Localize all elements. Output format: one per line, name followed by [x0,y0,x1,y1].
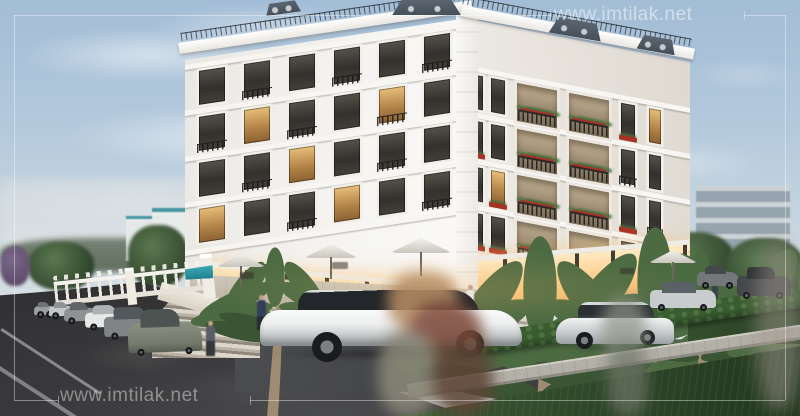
watermark-top-right: www.imtilak.net [554,4,692,26]
frame-tick [58,396,59,405]
pedestrian [206,326,215,356]
frame-line-top [744,15,785,16]
car-cabin [705,266,727,274]
car-wheel [312,332,342,362]
car-cabin [662,282,696,293]
frame-line-top [14,15,550,16]
parked-car [697,272,739,286]
frame-line-right [785,15,786,400]
frame-line-bottom [14,400,58,401]
rendered-photo: www.imtilak.net www.imtilak.net [0,0,800,416]
blur-blob [756,240,800,410]
blurred-pedestrian [756,240,800,410]
blurred-pedestrian [378,272,508,416]
frame-line-left [14,15,15,400]
blurred-pedestrian [592,296,656,416]
parked-car [650,290,716,308]
watermark-bottom-left: www.imtilak.net [60,385,198,407]
frame-line-bottom [250,400,785,401]
blur-blob [378,332,438,416]
car-wheel [576,332,593,349]
frame-tick [550,11,551,20]
blur-blob [433,342,493,416]
blur-blob [608,346,648,416]
